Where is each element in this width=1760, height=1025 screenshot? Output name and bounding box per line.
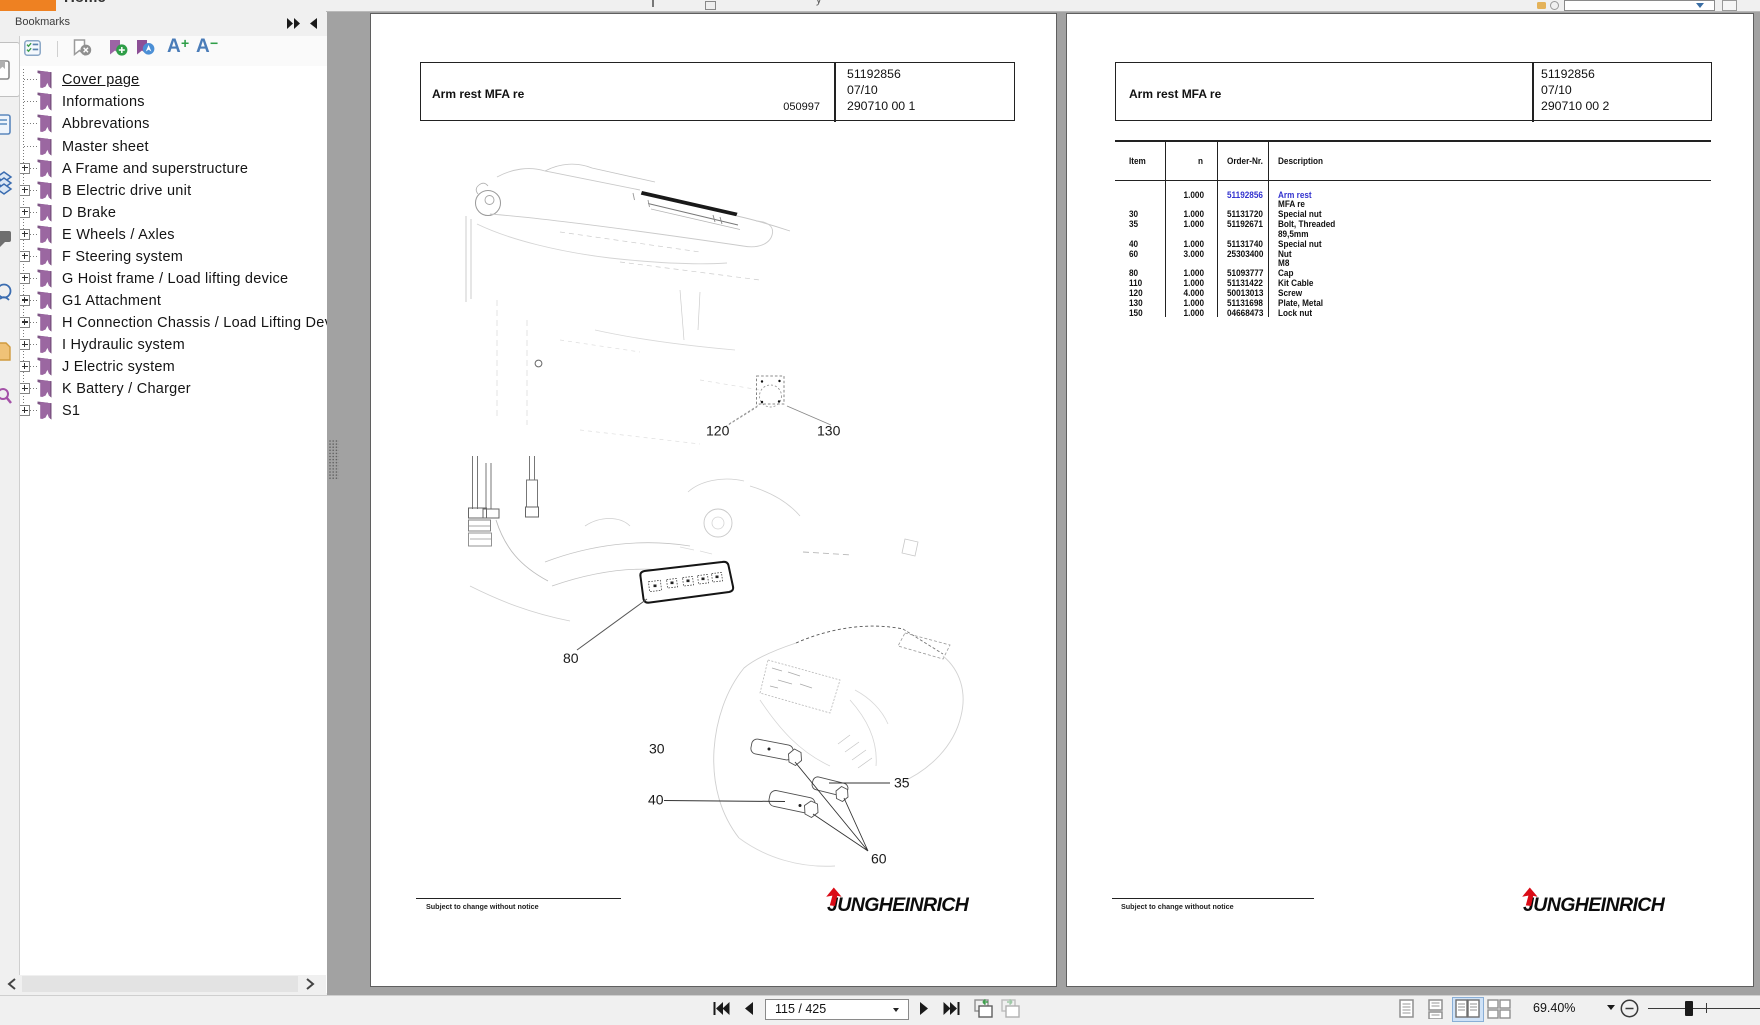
svg-text:40: 40 bbox=[648, 792, 664, 808]
svg-text:80: 80 bbox=[563, 650, 579, 666]
svg-text:30: 30 bbox=[649, 741, 665, 757]
svg-text:60: 60 bbox=[871, 851, 887, 867]
svg-text:35: 35 bbox=[894, 774, 910, 790]
svg-text:120: 120 bbox=[706, 423, 730, 439]
svg-text:130: 130 bbox=[817, 423, 841, 439]
